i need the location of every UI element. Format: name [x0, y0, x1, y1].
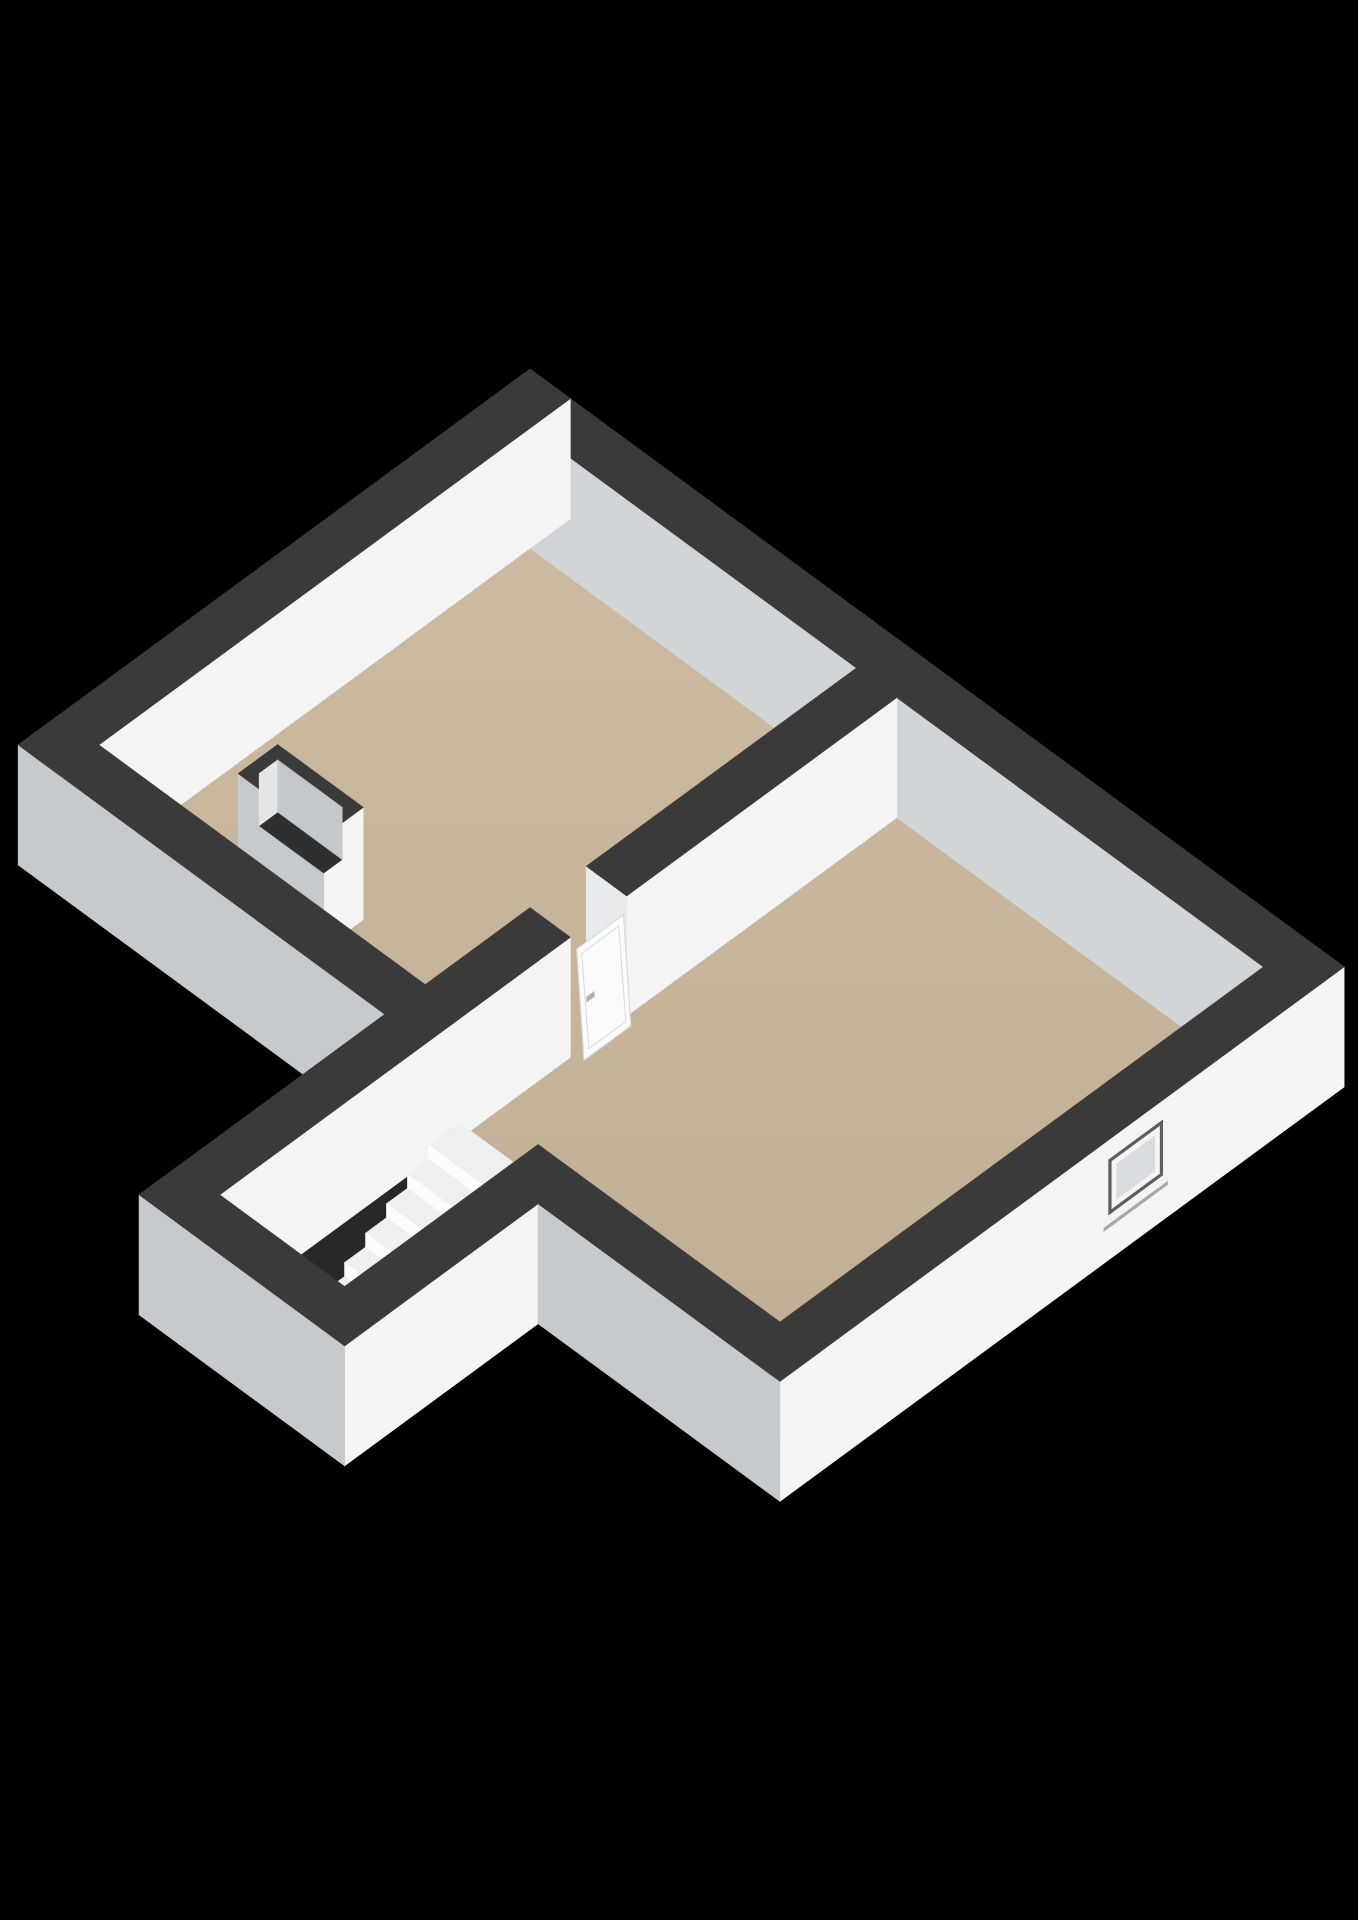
floorplan-viewport: [0, 0, 1358, 1920]
floorplan-3d-render: [0, 0, 1358, 1920]
